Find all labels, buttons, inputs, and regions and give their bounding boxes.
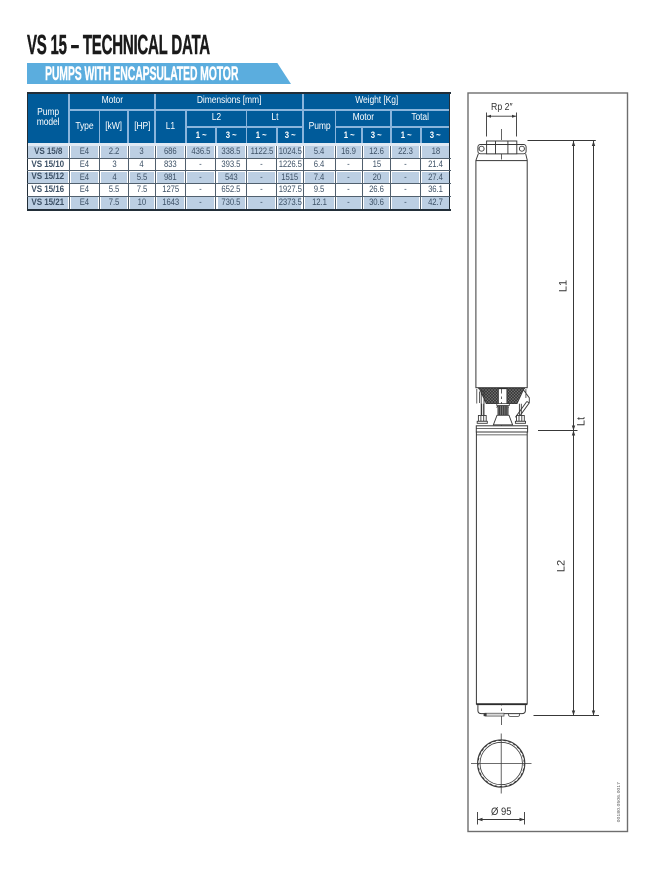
svg-text:Ø 95: Ø 95 <box>491 806 512 818</box>
svg-text:00180.0506.0017: 00180.0506.0017 <box>616 782 622 822</box>
svg-text:Rp 2″: Rp 2″ <box>491 102 513 113</box>
svg-text:L2: L2 <box>556 560 568 572</box>
svg-text:Lt: Lt <box>576 417 588 426</box>
svg-text:L1: L1 <box>558 280 570 292</box>
